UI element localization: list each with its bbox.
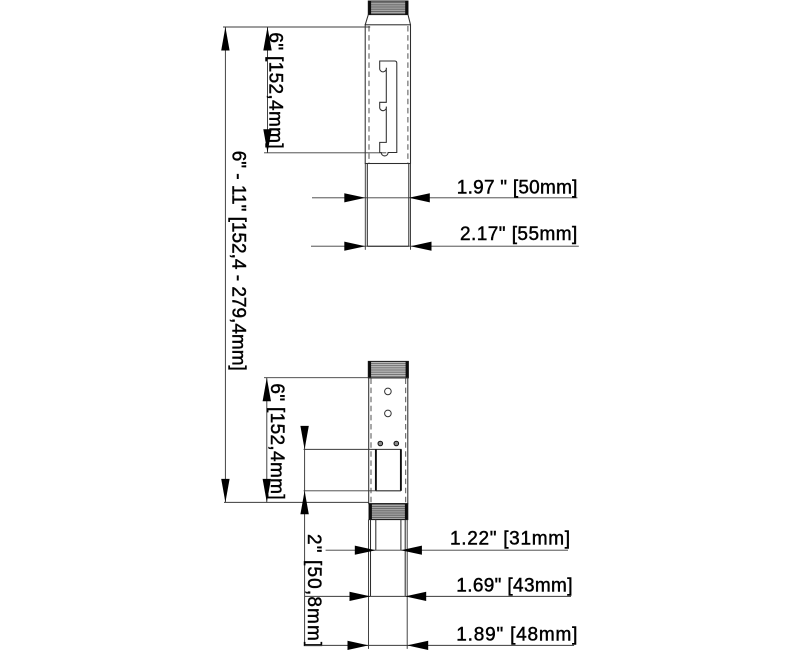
svg-text:2.17" [55mm]: 2.17" [55mm] xyxy=(460,224,578,245)
svg-text:1.22" [31mm]: 1.22" [31mm] xyxy=(450,529,571,550)
svg-text:1.97 " [50mm]: 1.97 " [50mm] xyxy=(457,177,578,198)
svg-text:6" - 11" [152,4 - 279,4mm]: 6" - 11" [152,4 - 279,4mm] xyxy=(228,151,249,371)
svg-text:1.69" [43mm]: 1.69" [43mm] xyxy=(456,575,573,596)
svg-text:2" [50,8mm]: 2" [50,8mm] xyxy=(303,534,324,648)
svg-text:6" [152,4mm]: 6" [152,4mm] xyxy=(266,383,287,500)
svg-text:6" [152,4mm]: 6" [152,4mm] xyxy=(265,32,286,149)
svg-text:1.89" [48mm]: 1.89" [48mm] xyxy=(456,624,578,645)
